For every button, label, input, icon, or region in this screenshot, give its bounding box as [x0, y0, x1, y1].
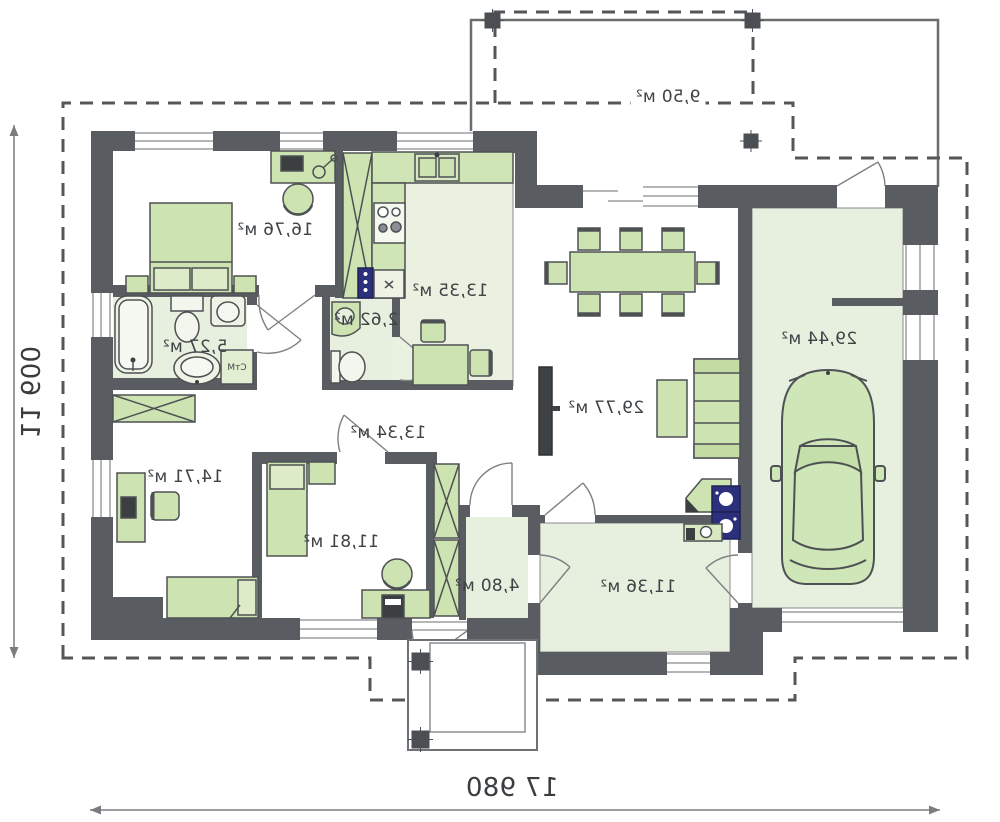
sink-icon [211, 296, 245, 326]
room-area-label-kitchen: 13,35 м² [412, 281, 488, 301]
room-area-label-wc: 2,62 м² [334, 310, 399, 330]
double-bed-icon [150, 203, 232, 293]
car-icon [771, 370, 885, 584]
dining-chair-icon [697, 262, 719, 284]
room-area-label-hall: 13,34 м² [350, 423, 426, 443]
shelf-icon [309, 462, 335, 484]
post-icon [408, 727, 433, 752]
wardrobe-icon [434, 464, 459, 538]
nightstand-icon [234, 276, 256, 293]
bathtub-icon [115, 296, 152, 373]
dining-chair-icon [578, 294, 600, 316]
sofa-icon [694, 359, 740, 458]
single-bed-icon [167, 577, 258, 618]
dining-chair-icon [662, 294, 684, 316]
chair-icon [151, 492, 179, 520]
dining-chair-icon [545, 262, 567, 284]
dining-chair-icon [662, 228, 684, 250]
chair-icon [421, 320, 445, 342]
room-area-label-vestibule: 4,80 м² [455, 576, 520, 596]
room-area-label-bedroom-2: 14,71 м² [147, 467, 223, 487]
dishwasher-icon [374, 270, 404, 298]
chair-icon [283, 184, 313, 215]
nightstand-icon [126, 276, 148, 293]
radiator-icon [358, 268, 373, 298]
toilet-icon [331, 351, 365, 383]
desk-icon [117, 473, 145, 542]
post-icon [740, 130, 762, 152]
stove-icon [374, 203, 405, 243]
dining-chair-icon [620, 228, 642, 250]
room-area-label-living-room: 29,77 м² [568, 398, 644, 418]
floor-plan: 9,50 м² 16,76 м² 13,35 м² 2,62 м² 5,27 м… [0, 0, 1000, 822]
dining-table-icon [570, 252, 695, 292]
width-dimension-line [90, 806, 940, 815]
room-area-label-terrace: 9,50 м² [631, 87, 706, 107]
room-area-label-bedroom-3: 11,81 м² [303, 532, 379, 552]
coffee-table-icon [657, 380, 687, 437]
width-dimension-label: 17 980 [466, 773, 559, 803]
chair-icon [470, 350, 492, 376]
chair-icon [382, 559, 412, 589]
vestibule-floor [466, 517, 528, 618]
dining-chair-icon [620, 294, 642, 316]
post-icon [408, 649, 433, 674]
desk-icon [271, 151, 337, 183]
room-area-label-garage: 29,44 м² [781, 329, 857, 349]
door-icon [837, 162, 885, 186]
room-area-label-bedroom-1: 16,76 м² [237, 220, 313, 240]
room-area-label-utility: 11,36 м² [600, 577, 676, 597]
room-area-label-bathroom: 5,27 м² [163, 337, 228, 357]
kitchen-sink-icon [415, 153, 459, 182]
washing-machine-label: СтМ [227, 363, 246, 373]
utility-washer-icon [684, 524, 722, 541]
wardrobe-icon [113, 395, 195, 422]
desk-icon [362, 590, 430, 618]
single-bed-icon [267, 462, 307, 556]
kitchen-table-icon [413, 345, 468, 385]
dining-chair-icon [578, 228, 600, 250]
height-dimension-label: 11 600 [14, 346, 44, 439]
floor-plan-drawing [0, 0, 1000, 822]
